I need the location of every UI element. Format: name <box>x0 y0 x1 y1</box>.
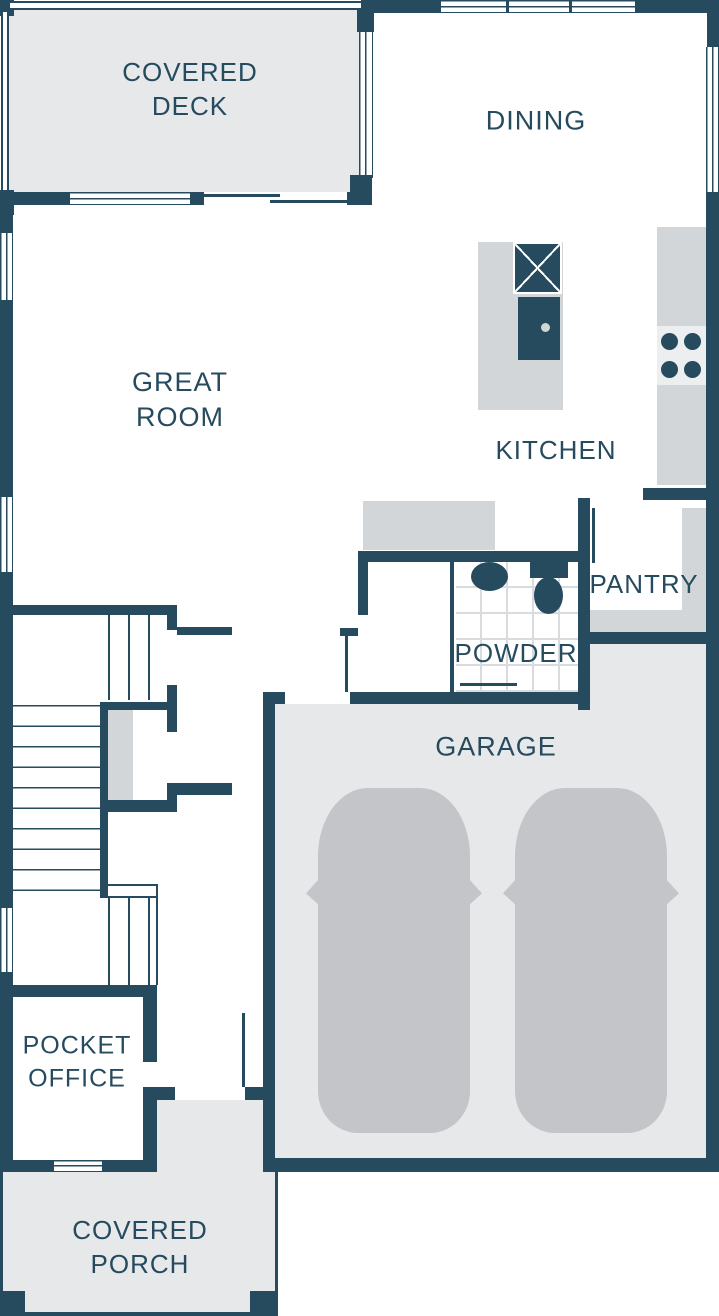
wall-stair-top <box>0 605 177 615</box>
window-greatroom-left <box>0 497 13 572</box>
wall-deck-dining <box>357 8 374 32</box>
wall-entry-stub <box>157 1087 175 1100</box>
stair-tread-line <box>108 898 110 985</box>
stair-tread-line <box>148 898 150 985</box>
stair-tread-line <box>108 615 110 700</box>
sink-faucet-icon <box>541 323 550 332</box>
toilet-bowl-icon <box>534 577 563 614</box>
stair-landing <box>108 710 133 800</box>
wall-hall-stub <box>177 627 232 635</box>
window-mullion <box>569 0 572 13</box>
wall-left <box>0 300 13 497</box>
window-mullion <box>506 0 509 13</box>
wall-hall-stub <box>175 783 232 795</box>
closet-door-leaf <box>345 632 348 692</box>
window-greatroom-top <box>70 192 190 205</box>
stair-tread-line <box>128 615 130 700</box>
wall-right <box>707 0 719 47</box>
room-label-covered-porch: COVERED PORCH <box>72 1214 208 1282</box>
stair-edge-line <box>156 898 158 985</box>
deck-railing-top <box>10 1 361 10</box>
wall-powder-top <box>358 551 590 562</box>
floor-plan: COVERED DECK DINING GREAT ROOM KITCHEN P… <box>0 0 719 1316</box>
room-label-powder: POWDER <box>455 637 578 671</box>
wall-left <box>0 972 13 1172</box>
burner-icon <box>684 361 701 378</box>
stair-tread-line <box>148 615 150 700</box>
burner-icon <box>661 361 678 378</box>
room-label-pocket-office: POCKET OFFICE <box>23 1030 132 1095</box>
room-label-great-room: GREAT ROOM <box>132 365 228 435</box>
wall-pantry-top <box>643 488 719 500</box>
wall-greatroom-top <box>347 192 372 205</box>
island-sink-icon <box>518 297 560 360</box>
entry-door-leaf <box>242 1013 245 1087</box>
wall-left <box>0 205 13 233</box>
porch-edge-bottom <box>25 1312 250 1316</box>
wall-pantry-bottom <box>585 632 719 644</box>
island-hood-icon <box>513 242 562 294</box>
wall-garage-bottom <box>263 1158 719 1172</box>
wall-powder-bottom <box>450 692 590 704</box>
room-label-kitchen: KITCHEN <box>495 434 616 468</box>
wall-garage-left <box>263 693 275 1172</box>
porch-edge-right <box>275 1172 278 1316</box>
stair-tread-line <box>128 898 130 985</box>
toilet-tank-icon <box>530 562 568 578</box>
wall-stair-bottom <box>100 800 177 812</box>
deck-railing-left <box>1 12 9 190</box>
porch-post <box>250 1291 275 1316</box>
wall-stair-mid <box>100 702 177 710</box>
room-label-pantry: PANTRY <box>589 568 698 602</box>
window-dining-top <box>441 0 635 13</box>
powder-pocket-door <box>460 683 517 686</box>
powder-sink-icon <box>471 562 508 591</box>
wall-left <box>0 572 13 908</box>
window-stair-left <box>0 908 13 972</box>
wall-garage-top <box>263 692 285 704</box>
room-label-covered-deck: COVERED DECK <box>122 56 258 124</box>
kitchen-counter-lower <box>363 501 495 550</box>
wall-greatroom-top <box>9 192 70 205</box>
deck-post <box>350 175 372 192</box>
car-icon <box>515 788 667 1133</box>
porch-entry-extension <box>157 1100 275 1172</box>
wall-greatroom-top <box>190 192 204 205</box>
burner-icon <box>661 333 678 350</box>
sliding-door-panel <box>204 194 280 197</box>
wall-closet-left <box>358 562 368 615</box>
burner-icon <box>684 333 701 350</box>
window-dining-right <box>706 47 719 192</box>
wall-powder-right <box>578 498 590 710</box>
porch-post <box>0 1291 25 1316</box>
room-label-garage: GARAGE <box>435 729 557 764</box>
wall-entry-stub <box>245 1087 263 1100</box>
window-deck-dining <box>359 32 373 178</box>
wall-office-right <box>143 985 157 1062</box>
wall-right <box>706 192 719 1172</box>
stair-flight-treads <box>13 705 100 895</box>
wall-stair-right <box>167 605 177 630</box>
sliding-door-panel <box>270 200 347 203</box>
stair-door-icon <box>106 884 158 898</box>
wall-closet-powder-partition <box>450 562 454 692</box>
pantry-shelf-bottom <box>590 610 706 632</box>
room-label-dining: DINING <box>486 103 587 138</box>
car-icon <box>318 788 470 1133</box>
pantry-door-leaf <box>592 508 595 563</box>
wall-office-top <box>0 985 157 997</box>
window-greatroom-left <box>0 233 13 300</box>
window-office-bottom <box>54 1160 102 1172</box>
wall-closet-stub <box>340 628 358 636</box>
